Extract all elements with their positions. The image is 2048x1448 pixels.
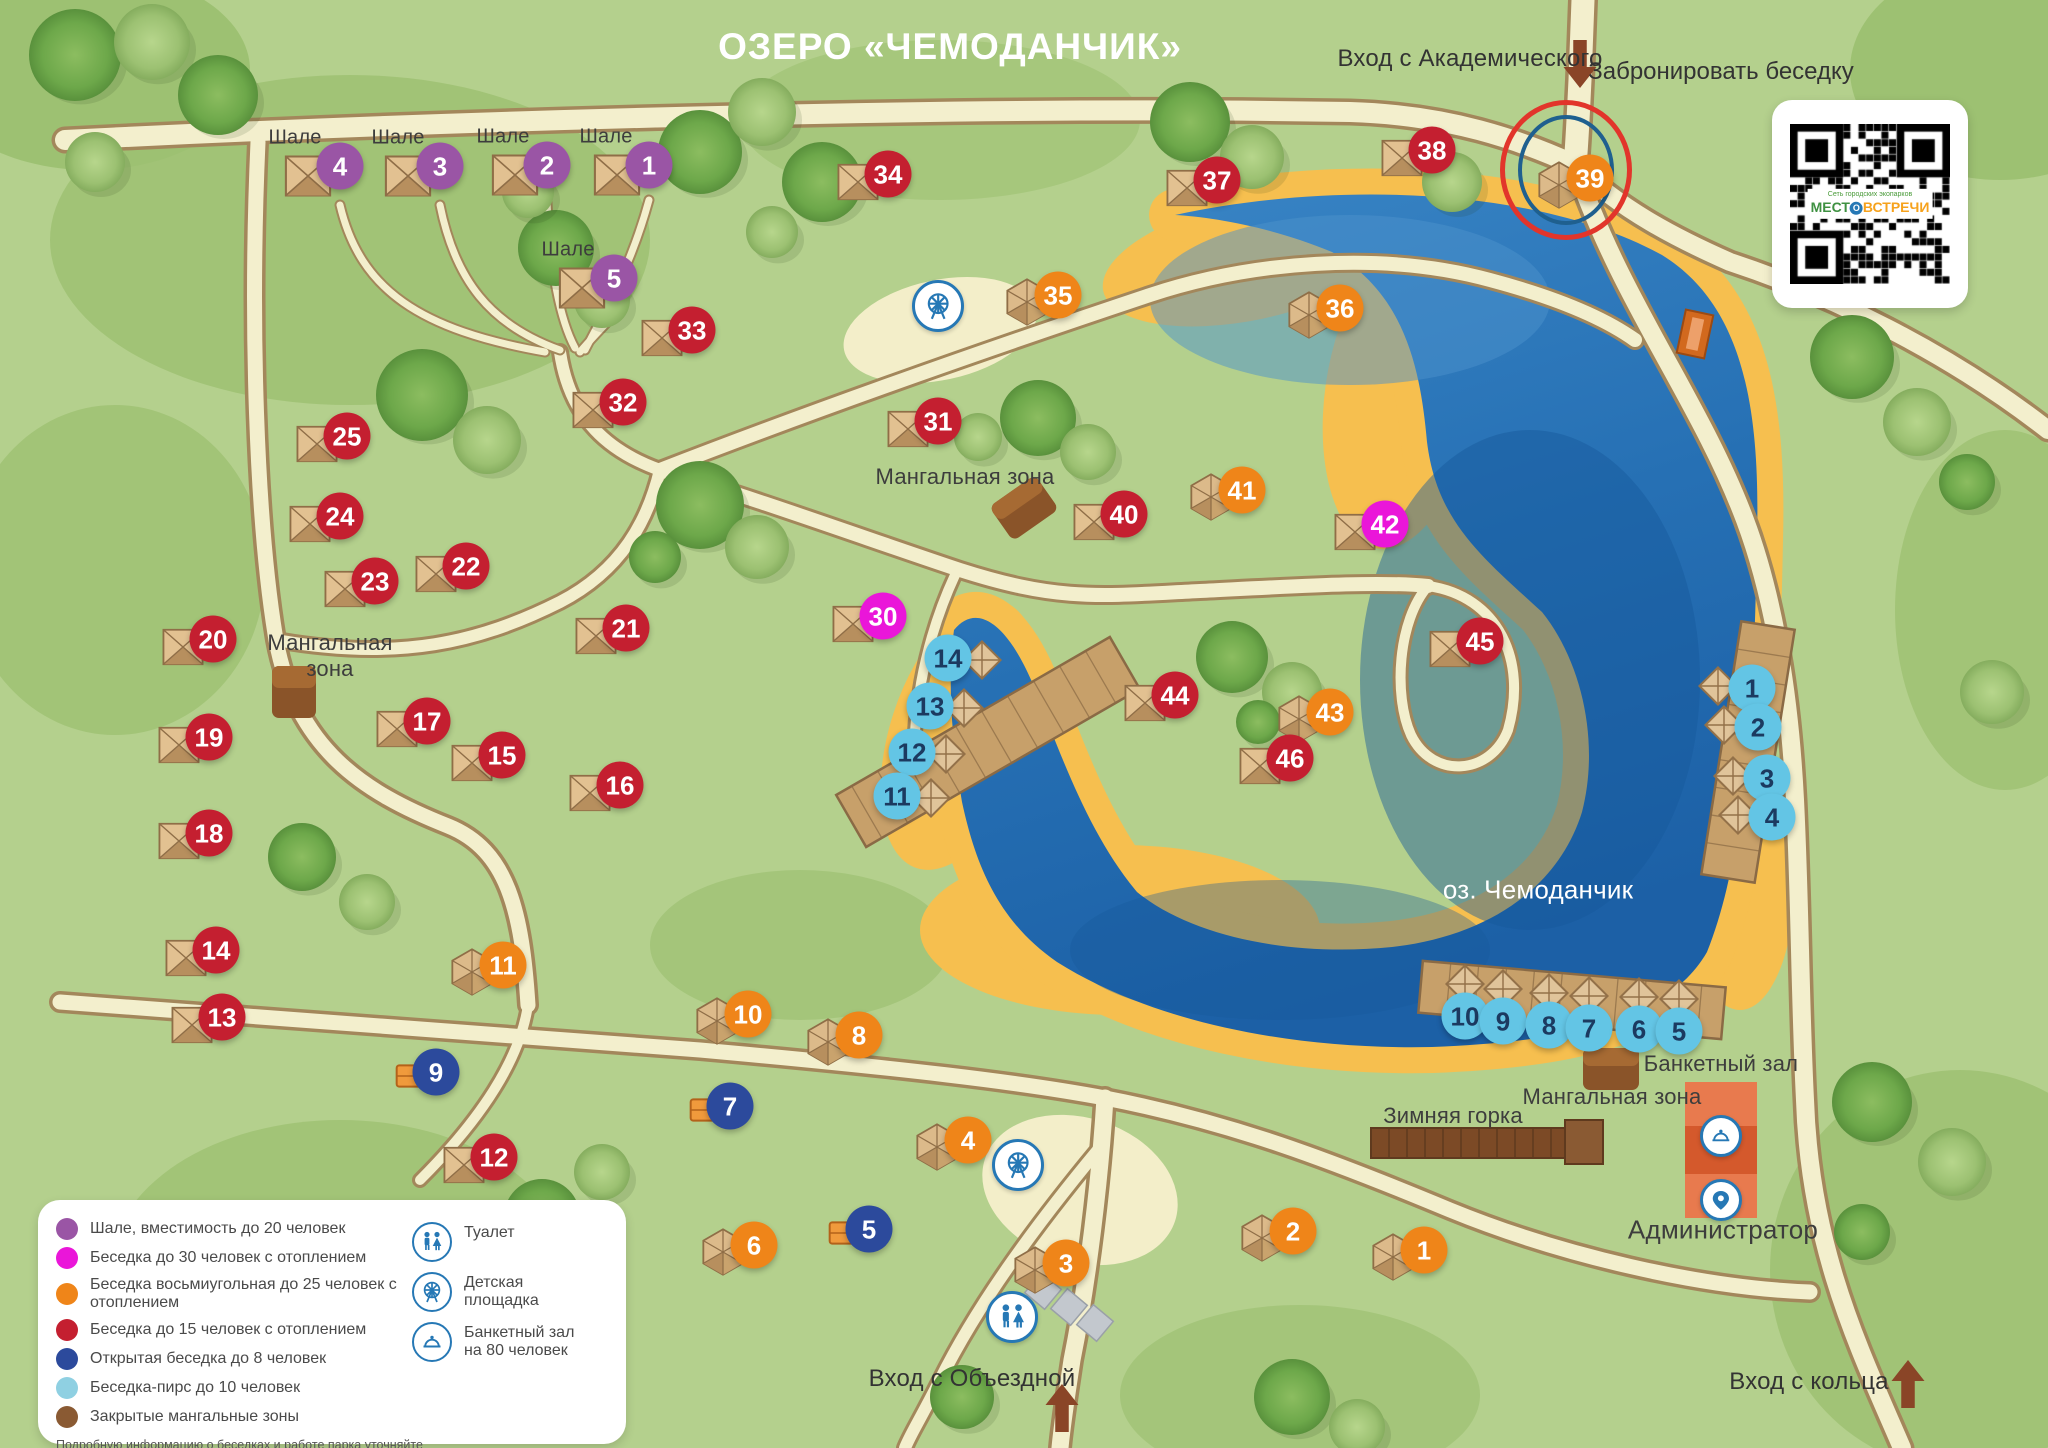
- marker-octagon25-41[interactable]: 41: [1219, 467, 1266, 514]
- marker-heated15-31[interactable]: 31: [915, 398, 962, 445]
- marker-chalet-4[interactable]: 4: [317, 143, 364, 190]
- legend-item-label: Открытая беседка до 8 человек: [90, 1350, 326, 1368]
- brand-vstrechi: ВСТРЕЧИ: [1863, 199, 1929, 215]
- legend-item-label: Беседка восьмиугольная до 25 человек с о…: [90, 1276, 412, 1312]
- marker-pier10-13[interactable]: 13: [907, 683, 954, 730]
- legend-dot: [56, 1406, 78, 1428]
- marker-pier10-11[interactable]: 11: [874, 773, 921, 820]
- marker-heated15-13[interactable]: 13: [199, 994, 246, 1041]
- marker-octagon25-3[interactable]: 3: [1043, 1240, 1090, 1287]
- legend-service-label: Туалет: [464, 1222, 515, 1242]
- qr-brand-logo: Сеть городских экопарков МЕСТОВСТРЕЧИ: [1808, 189, 1933, 219]
- legend-dot: [56, 1348, 78, 1370]
- marker-pier10-7[interactable]: 7: [1566, 1005, 1613, 1052]
- legend-item-label: Беседка до 30 человек с отоплением: [90, 1249, 366, 1267]
- admin-building: [1685, 1082, 1757, 1218]
- brand-pin-icon: О: [1850, 202, 1863, 215]
- marker-heated15-25[interactable]: 25: [324, 413, 371, 460]
- marker-heated15-37[interactable]: 37: [1194, 157, 1241, 204]
- marker-octagon25-43[interactable]: 43: [1307, 689, 1354, 736]
- marker-chalet-3[interactable]: 3: [417, 143, 464, 190]
- legend-item-label: Закрытые мангальные зоны: [90, 1408, 299, 1426]
- legend-dot: [56, 1377, 78, 1399]
- marker-heated15-15[interactable]: 15: [479, 732, 526, 779]
- marker-heated15-16[interactable]: 16: [597, 762, 644, 809]
- marker-heated15-46[interactable]: 46: [1267, 735, 1314, 782]
- legend-item: Шале, вместимость до 20 человек: [56, 1218, 412, 1240]
- marker-chalet-1[interactable]: 1: [626, 142, 673, 189]
- marker-chalet-5[interactable]: 5: [591, 255, 638, 302]
- marker-octagon25-6[interactable]: 6: [731, 1222, 778, 1269]
- marker-octagon25-1[interactable]: 1: [1401, 1227, 1448, 1274]
- marker-heated15-20[interactable]: 20: [190, 616, 237, 663]
- legend-item: Закрытые мангальные зоны: [56, 1406, 412, 1428]
- marker-heated15-18[interactable]: 18: [186, 810, 233, 857]
- booking-label: Забронировать беседку: [1588, 58, 1854, 86]
- footnote-line1: Подробную информацию о беседках и работе…: [56, 1437, 616, 1448]
- marker-pier10-14[interactable]: 14: [925, 635, 972, 682]
- marker-heated15-22[interactable]: 22: [443, 543, 490, 590]
- legend-service: Детская площадка: [412, 1272, 574, 1312]
- marker-heated15-21[interactable]: 21: [603, 605, 650, 652]
- marker-octagon25-10[interactable]: 10: [725, 991, 772, 1038]
- legend-item-label: Беседка-пирс до 10 человек: [90, 1379, 300, 1397]
- marker-heated15-32[interactable]: 32: [600, 379, 647, 426]
- legend-services: ТуалетДетская площадкаБанкетный зал на 8…: [412, 1218, 574, 1435]
- marker-octagon25-11[interactable]: 11: [480, 942, 527, 989]
- legend-item-label: Беседка до 15 человек с отоплением: [90, 1321, 366, 1339]
- marker-heated30-30[interactable]: 30: [860, 593, 907, 640]
- marker-pier10-4[interactable]: 4: [1749, 794, 1796, 841]
- winter-slide: [1371, 1120, 1603, 1164]
- legend-item: Беседка восьмиугольная до 25 человек с о…: [56, 1276, 412, 1312]
- marker-heated15-17[interactable]: 17: [404, 698, 451, 745]
- marker-octagon25-35[interactable]: 35: [1035, 272, 1082, 319]
- marker-heated15-44[interactable]: 44: [1152, 672, 1199, 719]
- marker-pier10-9[interactable]: 9: [1480, 998, 1527, 1045]
- legend-service-label: Банкетный зал на 80 человек: [464, 1322, 574, 1361]
- qr-caption: Сеть городских экопарков: [1811, 191, 1930, 199]
- marker-heated15-14[interactable]: 14: [193, 927, 240, 974]
- brand-mesto: МЕСТ: [1811, 199, 1850, 215]
- legend-items: Шале, вместимость до 20 человекБеседка д…: [56, 1218, 412, 1435]
- legend-dot: [56, 1319, 78, 1341]
- marker-heated15-12[interactable]: 12: [471, 1134, 518, 1181]
- qr-card: Сеть городских экопарков МЕСТОВСТРЕЧИ: [1772, 100, 1968, 308]
- marker-open8-9[interactable]: 9: [413, 1049, 460, 1096]
- marker-heated15-38[interactable]: 38: [1409, 127, 1456, 174]
- legend-item: Беседка до 30 человек с отоплением: [56, 1247, 412, 1269]
- legend-dot: [56, 1218, 78, 1240]
- legend-dot: [56, 1247, 78, 1269]
- marker-heated15-45[interactable]: 45: [1457, 618, 1504, 665]
- marker-chalet-2[interactable]: 2: [524, 142, 571, 189]
- marker-heated15-24[interactable]: 24: [317, 493, 364, 540]
- marker-heated15-19[interactable]: 19: [186, 714, 233, 761]
- legend-card: Шале, вместимость до 20 человекБеседка д…: [38, 1200, 626, 1444]
- marker-octagon25-39[interactable]: 39: [1567, 155, 1614, 202]
- marker-heated15-33[interactable]: 33: [669, 307, 716, 354]
- marker-pier10-2[interactable]: 2: [1735, 704, 1782, 751]
- marker-open8-7[interactable]: 7: [707, 1083, 754, 1130]
- marker-heated15-23[interactable]: 23: [352, 558, 399, 605]
- legend-dot: [56, 1283, 78, 1305]
- legend-item: Беседка до 15 человек с отоплением: [56, 1319, 412, 1341]
- legend-service: Туалет: [412, 1222, 574, 1262]
- legend-item: Открытая беседка до 8 человек: [56, 1348, 412, 1370]
- marker-octagon25-8[interactable]: 8: [836, 1012, 883, 1059]
- toilet-icon: [412, 1222, 452, 1262]
- playground-icon: [412, 1272, 452, 1312]
- marker-pier10-12[interactable]: 12: [889, 729, 936, 776]
- marker-pier10-5[interactable]: 5: [1656, 1008, 1703, 1055]
- banquet-icon: [412, 1322, 452, 1362]
- marker-heated30-42[interactable]: 42: [1362, 501, 1409, 548]
- marker-heated15-40[interactable]: 40: [1101, 491, 1148, 538]
- marker-octagon25-4[interactable]: 4: [945, 1117, 992, 1164]
- marker-octagon25-36[interactable]: 36: [1317, 285, 1364, 332]
- marker-octagon25-2[interactable]: 2: [1270, 1208, 1317, 1255]
- park-map-poster: ШалеШалеШалеШалеШалеМангальная зонаМанга…: [0, 0, 2048, 1448]
- legend-service-label: Детская площадка: [464, 1272, 539, 1311]
- legend-service: Банкетный зал на 80 человек: [412, 1322, 574, 1362]
- legend-footnote: Подробную информацию о беседках и работе…: [56, 1437, 616, 1448]
- legend-item-label: Шале, вместимость до 20 человек: [90, 1220, 345, 1238]
- legend-item: Беседка-пирс до 10 человек: [56, 1377, 412, 1399]
- marker-heated15-34[interactable]: 34: [865, 151, 912, 198]
- marker-open8-5[interactable]: 5: [846, 1206, 893, 1253]
